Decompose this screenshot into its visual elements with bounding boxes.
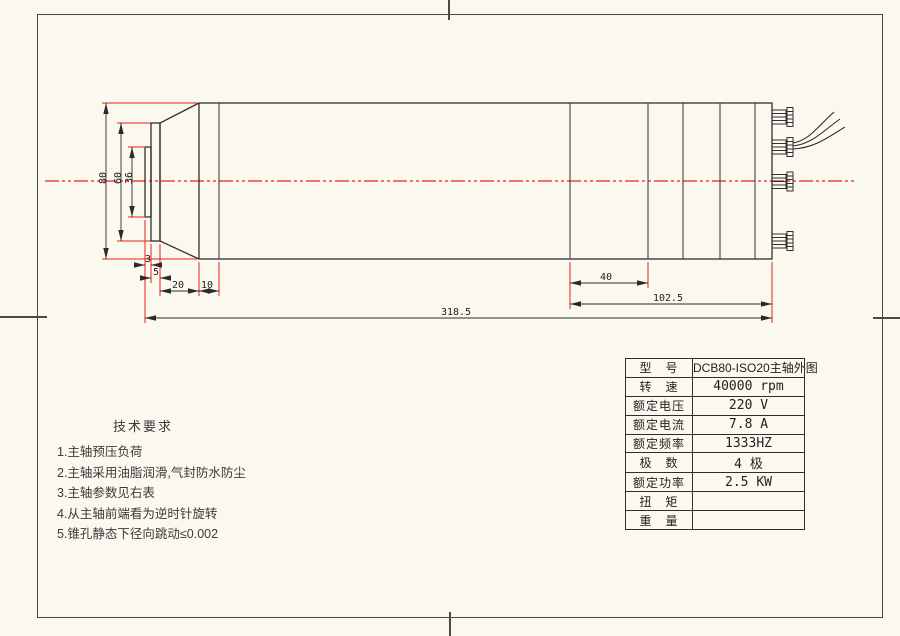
spec-label: 额定频率	[626, 434, 693, 453]
dim-label-3: 3	[145, 254, 151, 265]
spec-table: 型 号 DCB80-ISO20主轴外图 转 速 40000 rpm 额定电压 2…	[625, 358, 805, 530]
spec-row-weight: 重 量	[626, 511, 805, 530]
spec-value: 4 极	[693, 453, 805, 473]
spec-value: 2.5 KW	[693, 473, 805, 492]
cad-sheet: 80 60 36 3 5 20 10 40 102.5 318.5 技术要求 1…	[0, 0, 900, 636]
spec-value: 220 V	[693, 396, 805, 415]
dim-label-60: 60	[113, 172, 124, 184]
dim-label-20: 20	[172, 280, 184, 291]
tech-requirement-2: 2.主轴采用油脂润滑,气封防水防尘	[57, 463, 337, 484]
tech-requirement-5: 5.锥孔静态下径向跳动≤0.002	[57, 524, 337, 545]
dim-label-40: 40	[600, 272, 612, 283]
connector-wires	[793, 112, 845, 149]
dim-label-10: 10	[201, 280, 213, 291]
spec-row-frequency: 额定频率 1333HZ	[626, 434, 805, 453]
spec-value: 40000 rpm	[693, 377, 805, 396]
tech-requirements-title: 技术要求	[113, 416, 337, 435]
spec-label: 转 速	[626, 377, 693, 396]
spec-value: DCB80-ISO20主轴外图	[693, 359, 805, 378]
spec-label: 额定功率	[626, 473, 693, 492]
spec-label: 扭 矩	[626, 492, 693, 511]
spec-value	[693, 511, 805, 530]
front-nose-disc	[145, 147, 151, 217]
dim-label-5: 5	[153, 267, 159, 278]
spec-row-poles: 极 数 4 极	[626, 453, 805, 473]
spec-label: 额定电压	[626, 396, 693, 415]
rear-connector-4	[772, 232, 793, 251]
spec-label: 额定电流	[626, 415, 693, 434]
rear-connector-1	[772, 108, 793, 127]
dim-label-318-5: 318.5	[441, 307, 471, 318]
spec-row-power: 额定功率 2.5 KW	[626, 473, 805, 492]
tech-requirement-4: 4.从主轴前端看为逆时针旋转	[57, 504, 337, 525]
dim-label-80: 80	[98, 172, 109, 184]
spec-row-voltage: 额定电压 220 V	[626, 396, 805, 415]
tech-requirement-3: 3.主轴参数见右表	[57, 483, 337, 504]
rear-connectors	[772, 108, 845, 251]
spec-row-torque: 扭 矩	[626, 492, 805, 511]
dim-label-102-5: 102.5	[653, 293, 683, 304]
technical-requirements: 技术要求 1.主轴预压负荷 2.主轴采用油脂润滑,气封防水防尘 3.主轴参数见右…	[57, 416, 337, 545]
tech-requirement-1: 1.主轴预压负荷	[57, 442, 337, 463]
front-collar	[151, 123, 160, 241]
dimension-labels: 80 60 36 3 5 20 10 40 102.5 318.5	[98, 172, 683, 318]
spec-row-current: 额定电流 7.8 A	[626, 415, 805, 434]
spec-label: 重 量	[626, 511, 693, 530]
spec-label: 极 数	[626, 453, 693, 473]
dim-label-36: 36	[124, 172, 135, 184]
spec-value	[693, 492, 805, 511]
spec-value: 1333HZ	[693, 434, 805, 453]
spec-value: 7.8 A	[693, 415, 805, 434]
spec-row-speed: 转 速 40000 rpm	[626, 377, 805, 396]
spec-label: 型 号	[626, 359, 693, 378]
spec-row-model: 型 号 DCB80-ISO20主轴外图	[626, 359, 805, 378]
rear-connector-2	[772, 138, 793, 157]
